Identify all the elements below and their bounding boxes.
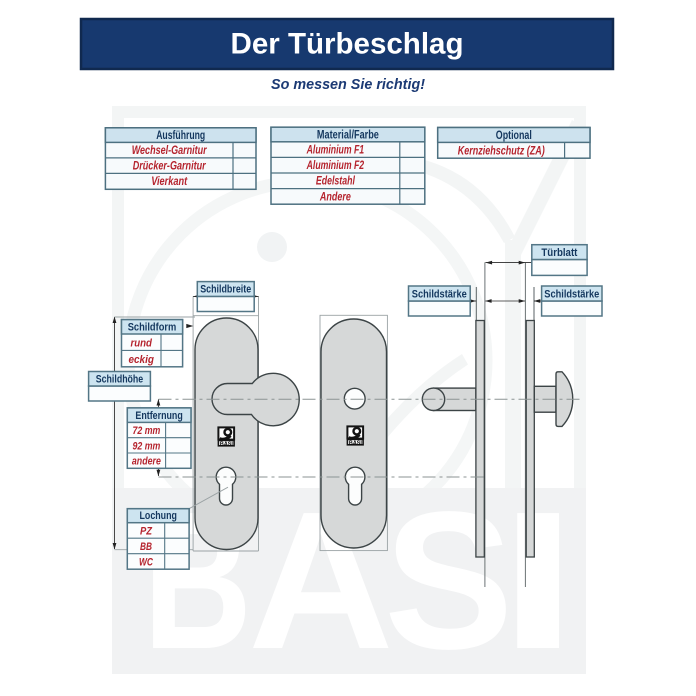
svg-text:Türblatt: Türblatt xyxy=(541,247,577,259)
svg-text:Schildform: Schildform xyxy=(128,322,177,334)
svg-text:Andere: Andere xyxy=(319,191,351,203)
svg-text:Schildstärke: Schildstärke xyxy=(544,289,599,301)
svg-text:Aluminium F1: Aluminium F1 xyxy=(306,145,364,157)
svg-text:Material/Farbe: Material/Farbe xyxy=(317,130,379,142)
svg-text:Schildbreite: Schildbreite xyxy=(200,284,251,296)
svg-text:Drücker-Garnitur: Drücker-Garnitur xyxy=(133,160,206,172)
svg-text:BASI: BASI xyxy=(220,441,233,447)
svg-text:Edelstahl: Edelstahl xyxy=(316,176,356,188)
svg-text:Vierkant: Vierkant xyxy=(151,176,188,188)
svg-text:Wechsel-Garnitur: Wechsel-Garnitur xyxy=(132,145,207,157)
svg-text:Kernziehschutz (ZA): Kernziehschutz (ZA) xyxy=(458,145,545,157)
svg-text:WC: WC xyxy=(139,557,154,569)
svg-text:92 mm: 92 mm xyxy=(133,440,161,452)
svg-text:Schildstärke: Schildstärke xyxy=(412,289,467,301)
svg-text:BB: BB xyxy=(140,541,152,553)
svg-text:BASI: BASI xyxy=(349,440,362,446)
svg-text:S: S xyxy=(384,471,513,690)
svg-text:rund: rund xyxy=(130,338,152,350)
svg-text:Entfernung: Entfernung xyxy=(135,410,182,422)
svg-text:72 mm: 72 mm xyxy=(133,425,161,437)
svg-text:Aluminium F2: Aluminium F2 xyxy=(306,160,365,172)
svg-text:Der Türbeschlag: Der Türbeschlag xyxy=(231,28,464,61)
svg-text:PZ: PZ xyxy=(140,526,153,538)
svg-text:eckig: eckig xyxy=(129,354,155,366)
svg-text:Lochung: Lochung xyxy=(140,510,177,522)
svg-text:Ausführung: Ausführung xyxy=(156,130,205,142)
svg-text:So messen Sie richtig!: So messen Sie richtig! xyxy=(271,76,425,93)
svg-text:I: I xyxy=(498,471,579,690)
svg-text:andere: andere xyxy=(132,456,161,468)
svg-text:Optional: Optional xyxy=(496,130,532,142)
svg-text:Schildhöhe: Schildhöhe xyxy=(96,373,143,385)
